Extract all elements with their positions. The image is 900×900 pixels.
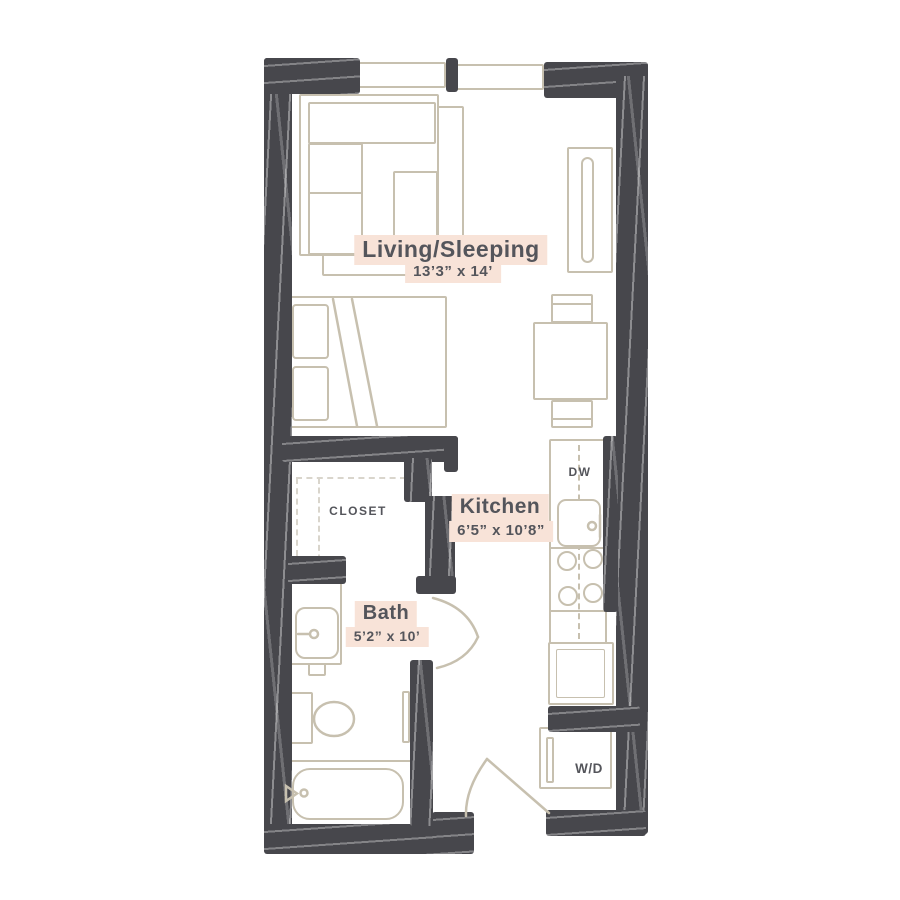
stove-burner — [558, 586, 578, 606]
wall-kitchen-right-thick — [603, 436, 618, 612]
dining-chair — [551, 400, 593, 428]
wall-closet-bottom-stub — [288, 556, 346, 584]
dishwasher-label: DW — [569, 465, 592, 479]
vanity-foot — [308, 663, 326, 676]
wall-top-left — [264, 58, 360, 94]
bath-door-swing — [433, 598, 478, 637]
bathtub-basin — [292, 768, 404, 820]
toilet-bowl — [314, 702, 354, 736]
wall-fridge-wd-divider — [548, 706, 640, 732]
counter-section-line — [550, 547, 606, 549]
kitchen-label: Kitchen — [452, 495, 549, 519]
entry-door-swing — [466, 759, 487, 816]
sofa-back-cushion — [308, 102, 436, 144]
bath-dimensions: 5’2” x 10’ — [346, 628, 429, 644]
wall-living-divider — [282, 436, 458, 462]
sofa-cushion-divider — [309, 192, 362, 194]
bath-door-swing — [437, 637, 478, 668]
closet-dashed-line — [296, 478, 298, 556]
counter-section-line — [550, 610, 606, 612]
window-mullion — [446, 58, 458, 92]
vanity-sink-basin — [295, 607, 339, 659]
bath-label: Bath — [355, 602, 417, 625]
dining-chair-back-line — [553, 303, 591, 305]
ottoman — [393, 171, 438, 241]
kitchen-sink — [557, 499, 601, 547]
closet-label: CLOSET — [329, 504, 387, 518]
pillow — [292, 366, 329, 421]
pillow — [292, 304, 329, 359]
stove-burner — [583, 549, 603, 569]
wall-bottom-right — [546, 810, 646, 836]
wall-bottom-door-stub — [432, 812, 474, 838]
dining-chair-back-line — [553, 418, 591, 420]
washer-dryer-label: W/D — [575, 761, 603, 776]
kitchen-dimensions: 6’5” x 10’8” — [449, 522, 553, 539]
stove-burner — [583, 583, 603, 603]
dining-table — [533, 322, 608, 400]
bath-name: Bath — [355, 601, 417, 627]
closet-dashed-line — [296, 477, 406, 479]
wall-bath-door-stub — [416, 576, 456, 594]
wall-bath-kitchen-divider — [410, 660, 433, 826]
window-pane — [456, 64, 544, 90]
kitchen-name: Kitchen — [452, 494, 549, 521]
towel-bar — [402, 691, 410, 743]
living-room-dimensions: 13’3” x 14’ — [405, 263, 501, 280]
dining-chair — [551, 294, 593, 323]
stove-burner — [557, 551, 577, 571]
washer-dryer-door-line — [546, 737, 554, 783]
living-room-name: Living/Sleeping — [354, 235, 547, 265]
living-room-label: Living/Sleeping — [354, 236, 547, 263]
refrigerator-inner-line — [556, 649, 605, 698]
floor-plan: Living/Sleeping 13’3” x 14’ Kitchen 6’5”… — [0, 0, 900, 900]
wall-living-divider-end — [444, 436, 458, 472]
window-pane — [354, 62, 446, 88]
wardrobe-door-handle — [581, 157, 594, 263]
